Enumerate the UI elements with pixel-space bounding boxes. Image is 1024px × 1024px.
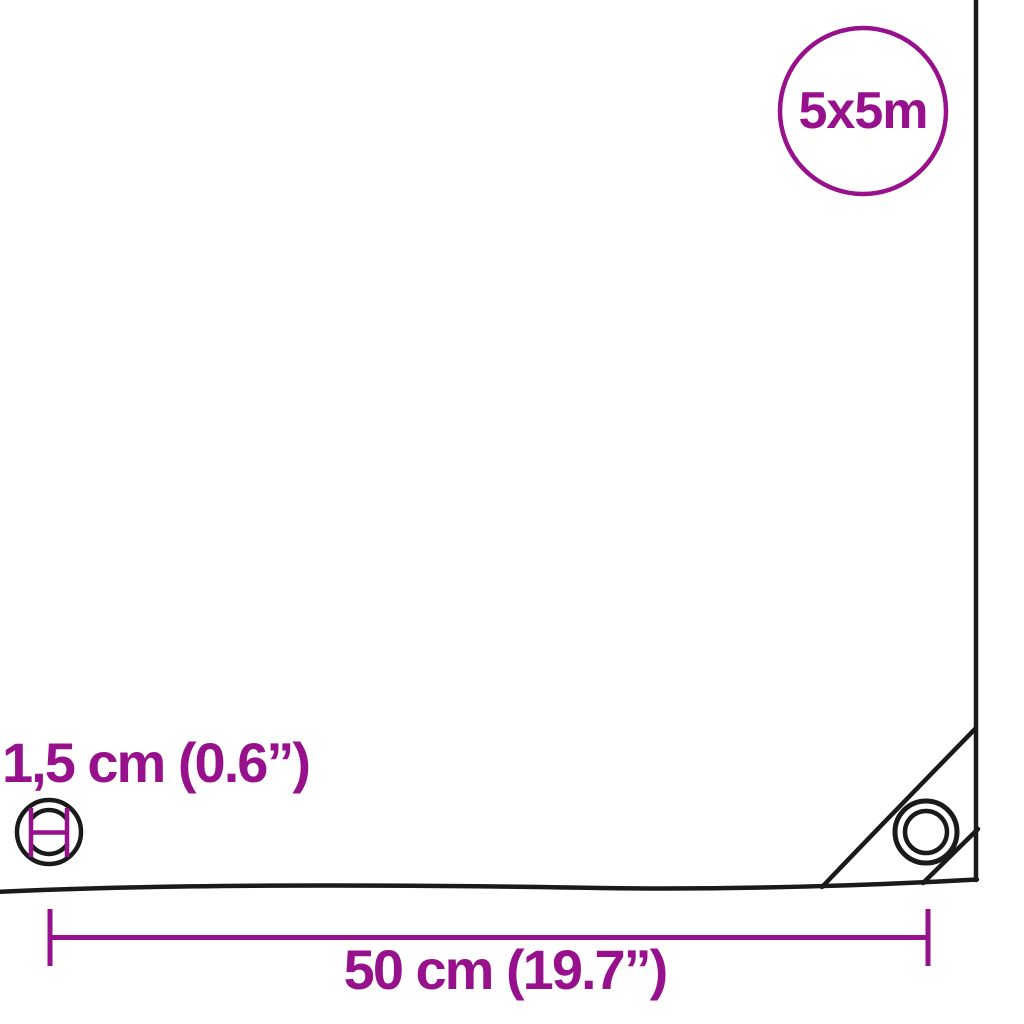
size-badge: 5x5m [780, 28, 946, 194]
grommet-spacing-label: 50 cm (19.7”) [344, 942, 667, 998]
grommet-inner-ring-top-arc [31, 810, 67, 819]
corner-reinforcement-line [822, 728, 976, 887]
grommet-size-label: 1,5 cm (0.6”) [2, 735, 309, 791]
grommet-icon [17, 800, 81, 864]
size-badge-label: 5x5m [799, 81, 928, 141]
product-diagram: 5x5m 1,5 cm (0.6”) 50 cm (19.7”) [0, 0, 1024, 1024]
corner-grommet-inner-ring [905, 811, 947, 853]
corner-grommet-icon [895, 801, 957, 863]
corner-fold-line [923, 829, 978, 883]
grommet-inner-ring-bottom-arc [31, 845, 67, 854]
